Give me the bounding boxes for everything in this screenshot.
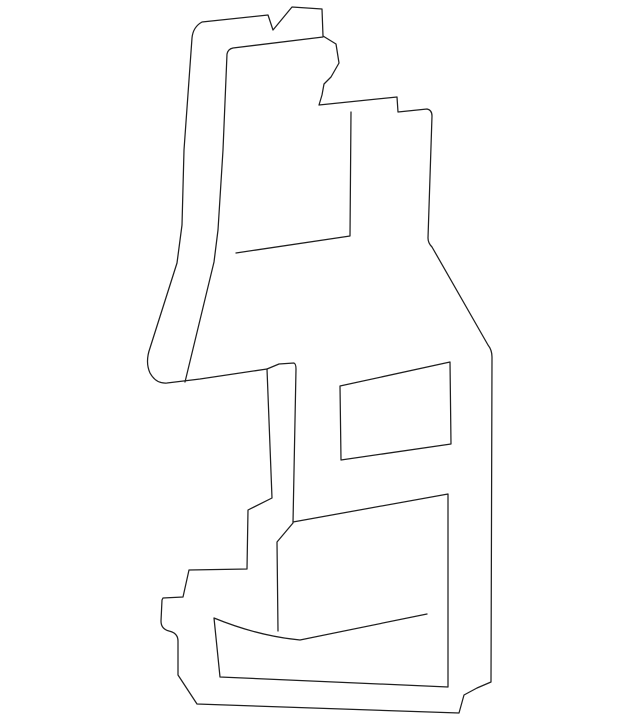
part-outer-outline	[148, 7, 493, 713]
part-lower-panel	[214, 494, 448, 687]
part-line-drawing	[0, 0, 640, 725]
part-window-cutout	[340, 362, 451, 460]
part-inner-top-edge	[185, 37, 323, 382]
diagram-canvas	[0, 0, 640, 725]
part-upper-recess-edge	[236, 112, 351, 253]
